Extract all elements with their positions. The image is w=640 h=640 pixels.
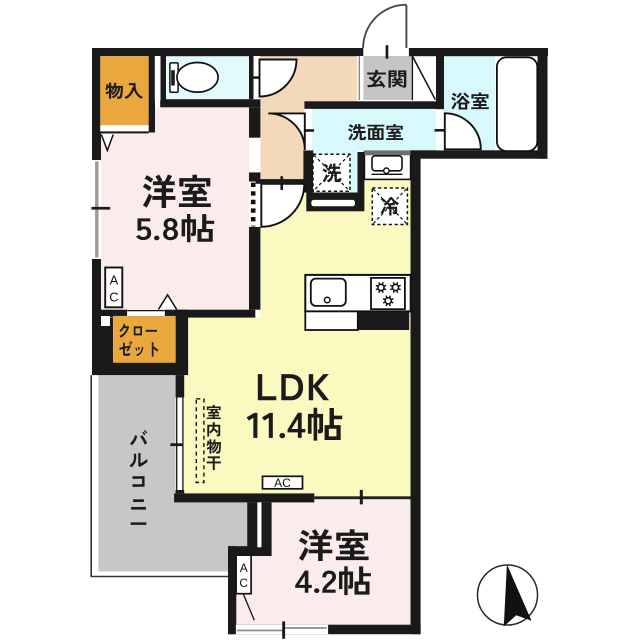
- svg-text:C: C: [109, 290, 118, 305]
- svg-text:AC: AC: [274, 476, 291, 490]
- svg-text:C: C: [239, 576, 248, 590]
- svg-text:A: A: [110, 273, 119, 288]
- svg-text:A: A: [240, 561, 248, 575]
